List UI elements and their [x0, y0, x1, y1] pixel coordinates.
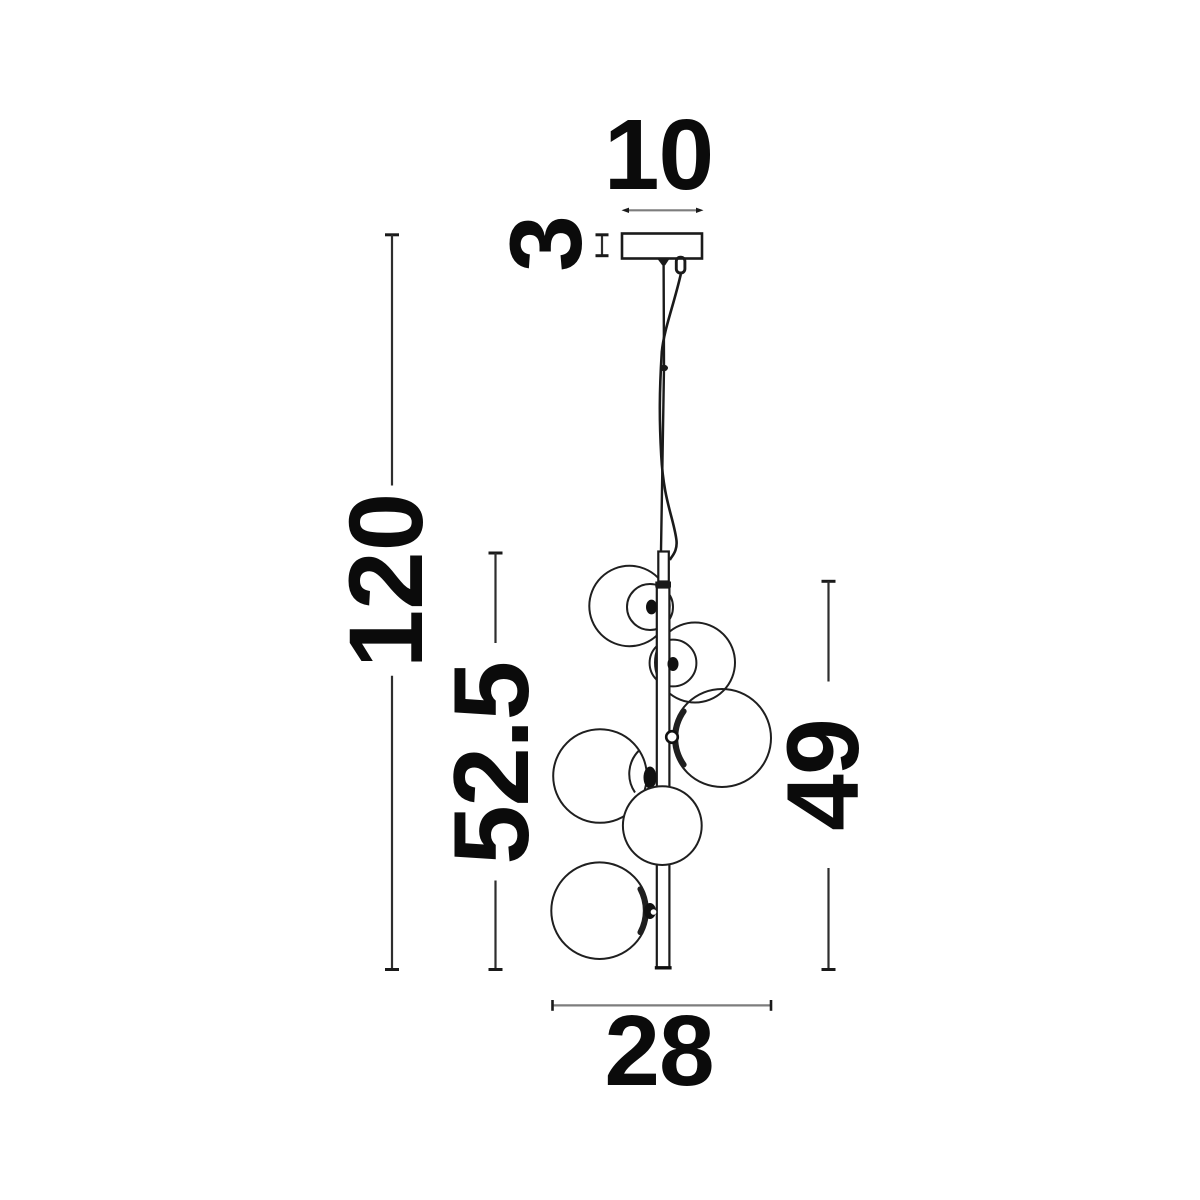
svg-text:10: 10	[604, 99, 713, 211]
svg-text:3: 3	[489, 215, 603, 272]
svg-text:120: 120	[328, 493, 445, 668]
svg-text:52.5: 52.5	[431, 662, 551, 864]
svg-text:28: 28	[604, 995, 713, 1107]
svg-text:49: 49	[766, 719, 880, 830]
